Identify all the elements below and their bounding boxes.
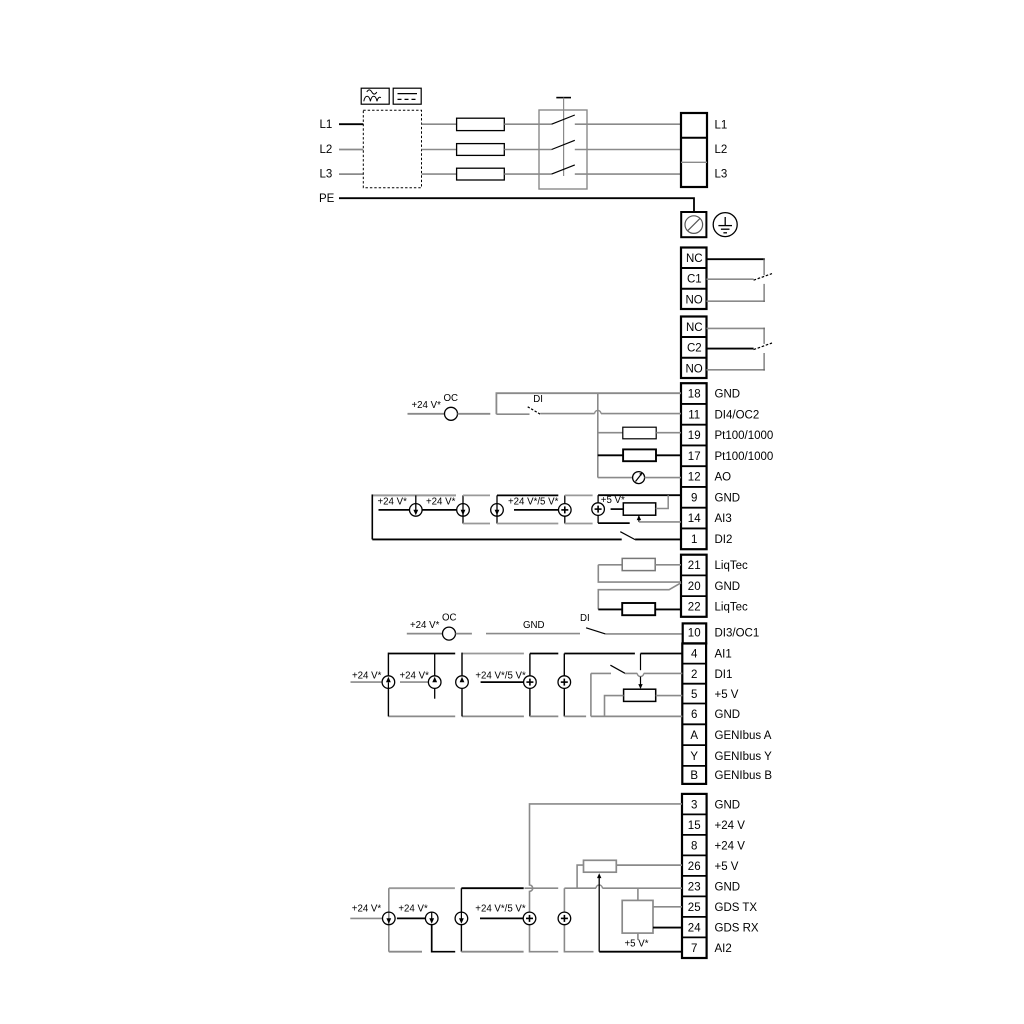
svg-text:NC: NC [686,253,703,265]
svg-text:15: 15 [688,820,701,832]
svg-text:+24 V*: +24 V* [410,620,440,631]
svg-text:+24 V*: +24 V* [398,904,428,915]
svg-text:Y: Y [690,751,698,763]
svg-text:GENIbus B: GENIbus B [715,770,773,782]
svg-text:+5 V: +5 V [715,689,739,701]
svg-text:DI2: DI2 [715,534,733,546]
svg-text:LiqTec: LiqTec [715,560,748,572]
svg-text:DI1: DI1 [715,669,733,681]
svg-text:18: 18 [688,389,701,401]
svg-text:23: 23 [688,881,701,893]
svg-text:10: 10 [688,627,701,639]
svg-text:GND: GND [715,799,741,811]
svg-text:L1: L1 [320,119,333,131]
svg-text:+24 V*: +24 V* [352,671,382,682]
svg-text:B: B [690,770,698,782]
svg-text:8: 8 [691,840,697,852]
svg-text:GND: GND [715,389,741,401]
svg-text:+24 V*/5 V*: +24 V*/5 V* [475,904,526,915]
svg-text:9: 9 [691,493,697,505]
svg-text:L2: L2 [320,144,333,156]
svg-text:20: 20 [688,581,701,593]
svg-text:AI1: AI1 [715,649,732,661]
svg-text:L3: L3 [715,169,728,181]
svg-text:GDS RX: GDS RX [715,922,759,934]
svg-text:6: 6 [691,709,697,721]
svg-text:NO: NO [686,363,703,375]
svg-text:GENIbus Y: GENIbus Y [715,751,773,763]
svg-text:DI4/OC2: DI4/OC2 [715,410,760,422]
svg-text:A: A [690,730,698,742]
svg-text:Pt100/1000: Pt100/1000 [715,430,774,442]
svg-text:GND: GND [715,493,741,505]
svg-text:5: 5 [691,689,697,701]
svg-text:L1: L1 [715,120,728,132]
svg-text:L3: L3 [320,168,333,180]
svg-text:Pt100/1000: Pt100/1000 [715,451,774,463]
svg-text:L2: L2 [715,144,728,156]
svg-text:GND: GND [715,881,741,893]
svg-text:7: 7 [691,943,697,955]
svg-text:LiqTec: LiqTec [715,602,748,614]
svg-text:+24 V*: +24 V* [352,904,382,915]
svg-text:14: 14 [688,513,701,525]
svg-text:OC: OC [442,613,457,624]
svg-text:GND: GND [523,620,545,631]
svg-text:4: 4 [691,649,698,661]
svg-text:17: 17 [688,451,701,463]
svg-text:+24 V*: +24 V* [378,497,408,508]
svg-text:+24 V: +24 V [715,820,746,832]
svg-text:AO: AO [715,472,732,484]
svg-text:11: 11 [688,410,700,422]
svg-text:DI: DI [580,613,590,624]
svg-text:C1: C1 [687,274,702,286]
svg-text:DI: DI [533,394,543,405]
svg-text:+24 V*/5 V*: +24 V*/5 V* [508,497,559,508]
svg-text:3: 3 [691,799,697,811]
svg-text:GND: GND [715,581,741,593]
svg-text:DI3/OC1: DI3/OC1 [715,627,760,639]
svg-text:+5 V*: +5 V* [601,495,625,506]
svg-text:C2: C2 [687,343,702,355]
svg-text:26: 26 [688,861,701,873]
svg-text:+24 V*: +24 V* [426,497,456,508]
svg-text:PE: PE [319,193,335,205]
svg-text:+5 V*: +5 V* [625,939,649,950]
svg-text:+24 V: +24 V [715,840,746,852]
svg-text:AI3: AI3 [715,513,732,525]
svg-text:GENIbus A: GENIbus A [715,730,772,742]
svg-text:AI2: AI2 [715,943,732,955]
svg-text:25: 25 [688,902,701,914]
svg-text:OC: OC [444,393,459,404]
svg-text:21: 21 [688,560,701,572]
svg-text:24: 24 [688,922,701,934]
svg-text:12: 12 [688,472,701,484]
svg-text:GDS TX: GDS TX [715,902,758,914]
svg-text:+24 V*: +24 V* [400,671,430,682]
svg-text:19: 19 [688,430,701,442]
svg-text:NO: NO [686,294,703,306]
svg-text:1: 1 [691,534,697,546]
svg-text:+24 V*: +24 V* [412,400,442,411]
svg-text:22: 22 [688,602,701,614]
svg-text:GND: GND [715,709,741,721]
svg-text:+5 V: +5 V [715,861,739,873]
svg-text:2: 2 [691,669,697,681]
svg-text:NC: NC [686,322,703,334]
svg-text:+24 V*/5 V*: +24 V*/5 V* [475,671,526,682]
